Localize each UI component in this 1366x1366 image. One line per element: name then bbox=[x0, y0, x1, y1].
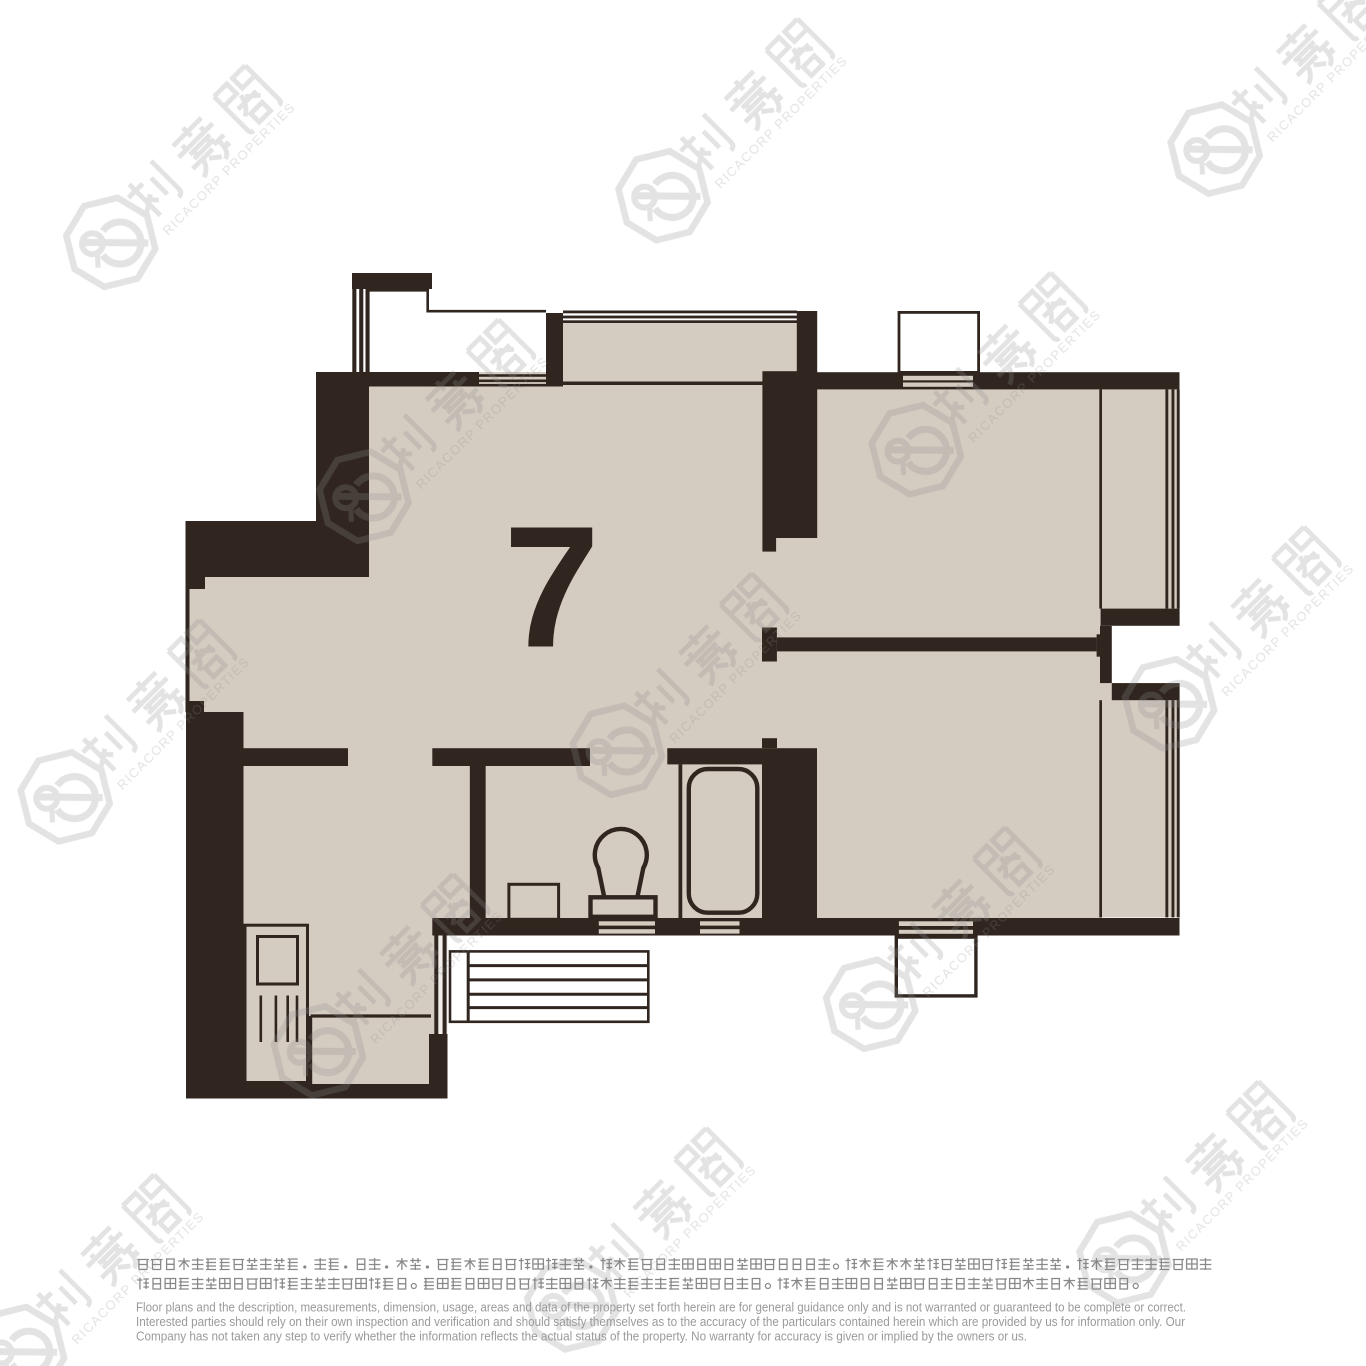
svg-text:Interested parties should rely: Interested parties should rely on their … bbox=[136, 1314, 1186, 1329]
svg-text:7: 7 bbox=[504, 490, 600, 684]
svg-text:Floor plans and the descriptio: Floor plans and the description, measure… bbox=[136, 1299, 1186, 1314]
svg-text:Company has not taken any step: Company has not taken any step to verify… bbox=[136, 1329, 1027, 1344]
